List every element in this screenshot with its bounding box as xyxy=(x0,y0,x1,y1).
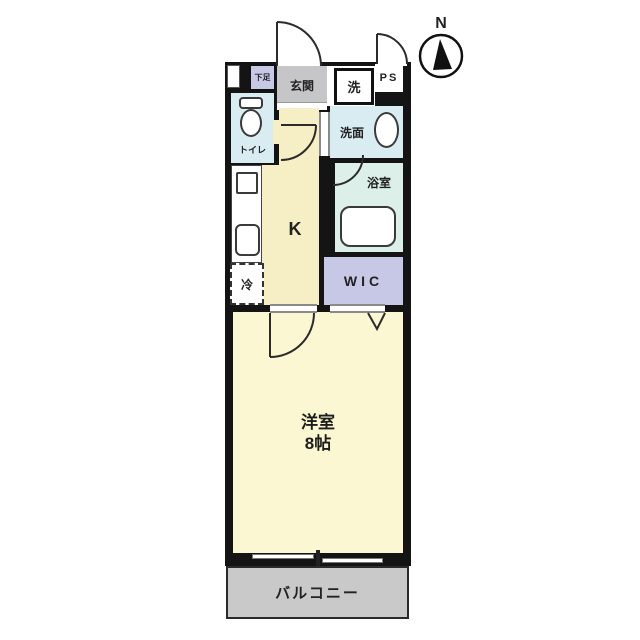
room-wic: WIC xyxy=(324,257,403,305)
pipe-space-label: PS xyxy=(380,72,399,84)
shoe-storage-label: 下足 xyxy=(255,72,271,83)
washroom-sliding-door xyxy=(319,112,330,156)
pipe-space: PS xyxy=(375,64,403,92)
room-shoe-storage: 下足 xyxy=(249,64,276,91)
room-bathroom: 浴室 xyxy=(335,163,403,252)
balcony-label: バルコニー xyxy=(275,582,360,603)
room-kitchen-upper xyxy=(279,108,319,165)
room-washroom: 洗面 xyxy=(330,106,403,158)
window-center-lock-icon xyxy=(316,550,320,566)
room-kitchen: K xyxy=(262,165,319,305)
bedroom-size-label: 8帖 xyxy=(233,433,403,454)
compass-icon xyxy=(420,35,462,77)
kitchen-sink-icon xyxy=(235,224,260,256)
refrigerator-space: 冷 xyxy=(230,263,264,305)
toilet-tank-icon xyxy=(239,97,263,109)
bathroom-label: 浴室 xyxy=(367,174,391,191)
toilet-label: トイレ xyxy=(239,143,266,156)
ps-door-arc xyxy=(377,34,407,64)
room-bedroom: 洋室 8帖 xyxy=(233,312,403,553)
balcony: バルコニー xyxy=(226,566,409,619)
refrigerator-label: 冷 xyxy=(241,276,253,293)
floor-plan: 下足 玄関 洗 PS トイレ K 冷 洗面 xyxy=(0,0,640,640)
window-pane-left xyxy=(252,554,314,559)
room-toilet: トイレ xyxy=(231,93,274,163)
bedroom-door-track xyxy=(270,304,317,313)
entrance-label: 玄関 xyxy=(290,77,314,94)
washer-space: 洗 xyxy=(334,68,374,105)
kitchen-counter xyxy=(231,165,262,263)
bedroom-name-label: 洋室 xyxy=(233,412,403,433)
washer-label: 洗 xyxy=(347,77,360,96)
wic-door-track xyxy=(330,304,385,313)
washroom-label: 洗面 xyxy=(340,124,364,141)
north-letter: N xyxy=(435,15,447,33)
toilet-window-icon xyxy=(227,65,240,88)
compass-north-label: N xyxy=(424,14,458,34)
window-pane-right xyxy=(322,558,383,563)
kitchen-label: K xyxy=(289,219,302,240)
stove-icon xyxy=(236,172,258,194)
toilet-bowl-icon xyxy=(240,109,262,137)
entrance-door-arc xyxy=(277,22,321,66)
bathtub-icon xyxy=(340,206,396,247)
room-entrance: 玄関 xyxy=(277,66,327,104)
washbasin-icon xyxy=(374,112,399,148)
wic-label: WIC xyxy=(344,273,383,289)
